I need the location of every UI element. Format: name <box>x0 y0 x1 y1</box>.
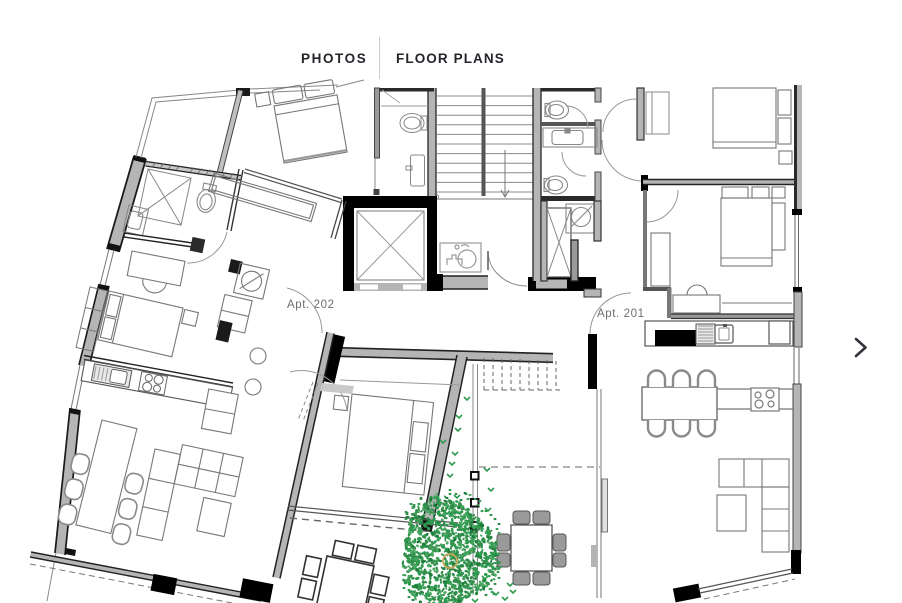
svg-text:Apt. 201: Apt. 201 <box>597 308 645 320</box>
svg-text:Apt. 202: Apt. 202 <box>287 299 335 311</box>
